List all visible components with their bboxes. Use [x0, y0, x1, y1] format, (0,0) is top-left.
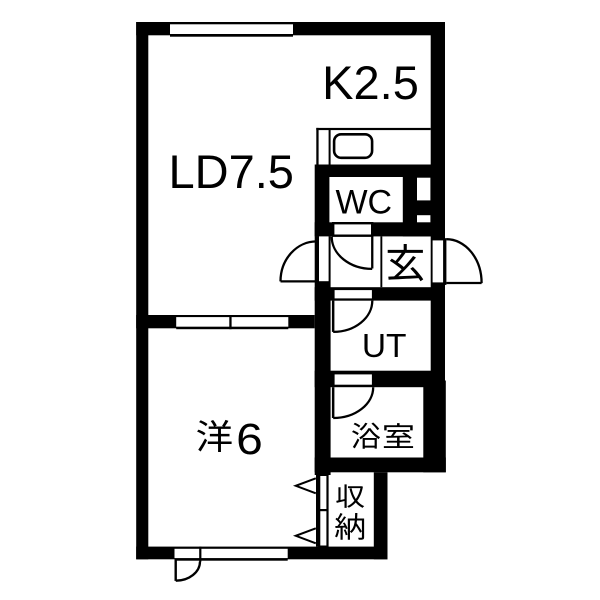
svg-text:LD7.5: LD7.5: [168, 145, 293, 198]
svg-text:6: 6: [236, 414, 263, 464]
svg-text:WC: WC: [335, 184, 392, 222]
svg-text:K2.5: K2.5: [322, 56, 419, 109]
svg-text:UT: UT: [362, 328, 407, 365]
